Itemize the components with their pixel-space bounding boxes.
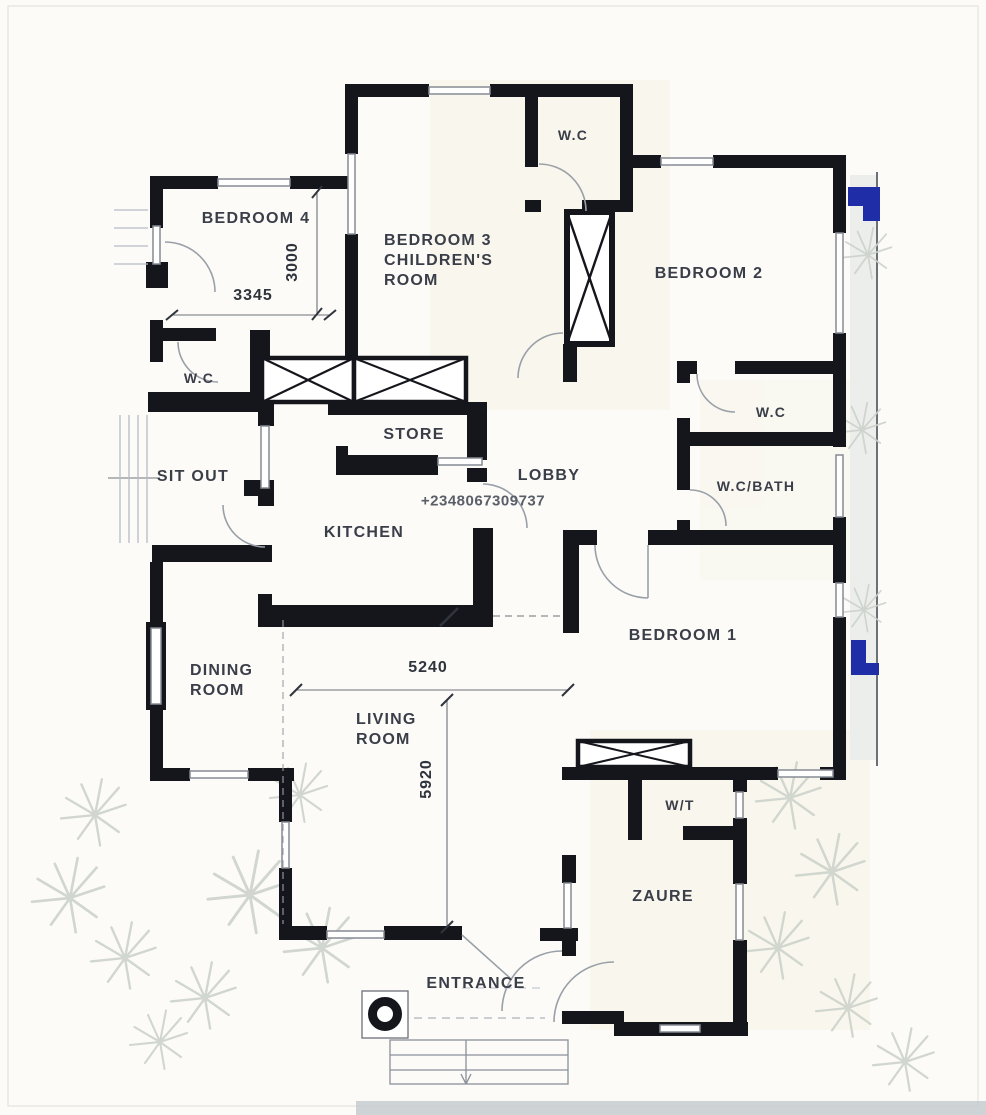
sit-out-steps <box>114 210 148 543</box>
dimension-bedroom4-depth: 3000 <box>284 242 302 282</box>
room-label-dining: DINING ROOM <box>190 661 253 701</box>
room-label-dining-line1: DINING <box>190 661 253 681</box>
room-label-sit-out: SIT OUT <box>157 468 229 486</box>
entrance-steps <box>390 1040 568 1084</box>
room-label-wc-right: W.C <box>756 404 786 420</box>
room-label-bedroom4: BEDROOM 4 <box>202 210 311 228</box>
room-label-wc-bath: W.C/BATH <box>717 478 796 494</box>
dimension-living-depth: 5920 <box>418 759 436 799</box>
room-label-wt: W/T <box>665 797 695 813</box>
floor-plan-sheet: BEDROOM 4 BEDROOM 3 CHILDREN'S ROOM W.C … <box>0 0 986 1115</box>
room-label-dining-line2: ROOM <box>190 681 253 701</box>
wardrobe-hatch-left <box>262 358 354 402</box>
room-label-lobby: LOBBY <box>518 467 581 485</box>
room-label-bedroom1: BEDROOM 1 <box>629 627 738 645</box>
shaft-hatch <box>567 212 612 344</box>
watermark-phone: +2348067309737 <box>421 493 545 510</box>
room-label-living: LIVING ROOM <box>356 710 417 750</box>
room-label-living-line2: ROOM <box>356 730 417 750</box>
room-label-wc-left: W.C <box>184 370 214 386</box>
room-label-bedroom3-line3: ROOM <box>384 271 493 291</box>
room-label-wc-top: W.C <box>558 127 588 143</box>
room-label-kitchen: KITCHEN <box>324 524 404 542</box>
bottom-scan-strip <box>356 1101 986 1115</box>
wardrobe-hatch-bedroom1 <box>578 741 690 767</box>
room-label-bedroom2: BEDROOM 2 <box>655 265 764 283</box>
floor-plan-drawing <box>0 0 986 1115</box>
room-label-zaure: ZAURE <box>632 888 694 906</box>
wardrobe-hatch-center <box>354 358 466 402</box>
room-label-living-line1: LIVING <box>356 710 417 730</box>
room-label-bedroom3-line2: CHILDREN'S <box>384 251 493 271</box>
dimension-living-width: 5240 <box>408 659 448 677</box>
column-icon <box>362 991 408 1038</box>
room-label-entrance: ENTRANCE <box>426 975 525 993</box>
dimension-bedroom4-width: 3345 <box>233 287 273 305</box>
room-label-bedroom3-line1: BEDROOM 3 <box>384 231 493 251</box>
room-label-store: STORE <box>383 426 444 444</box>
room-label-bedroom3: BEDROOM 3 CHILDREN'S ROOM <box>384 231 493 291</box>
